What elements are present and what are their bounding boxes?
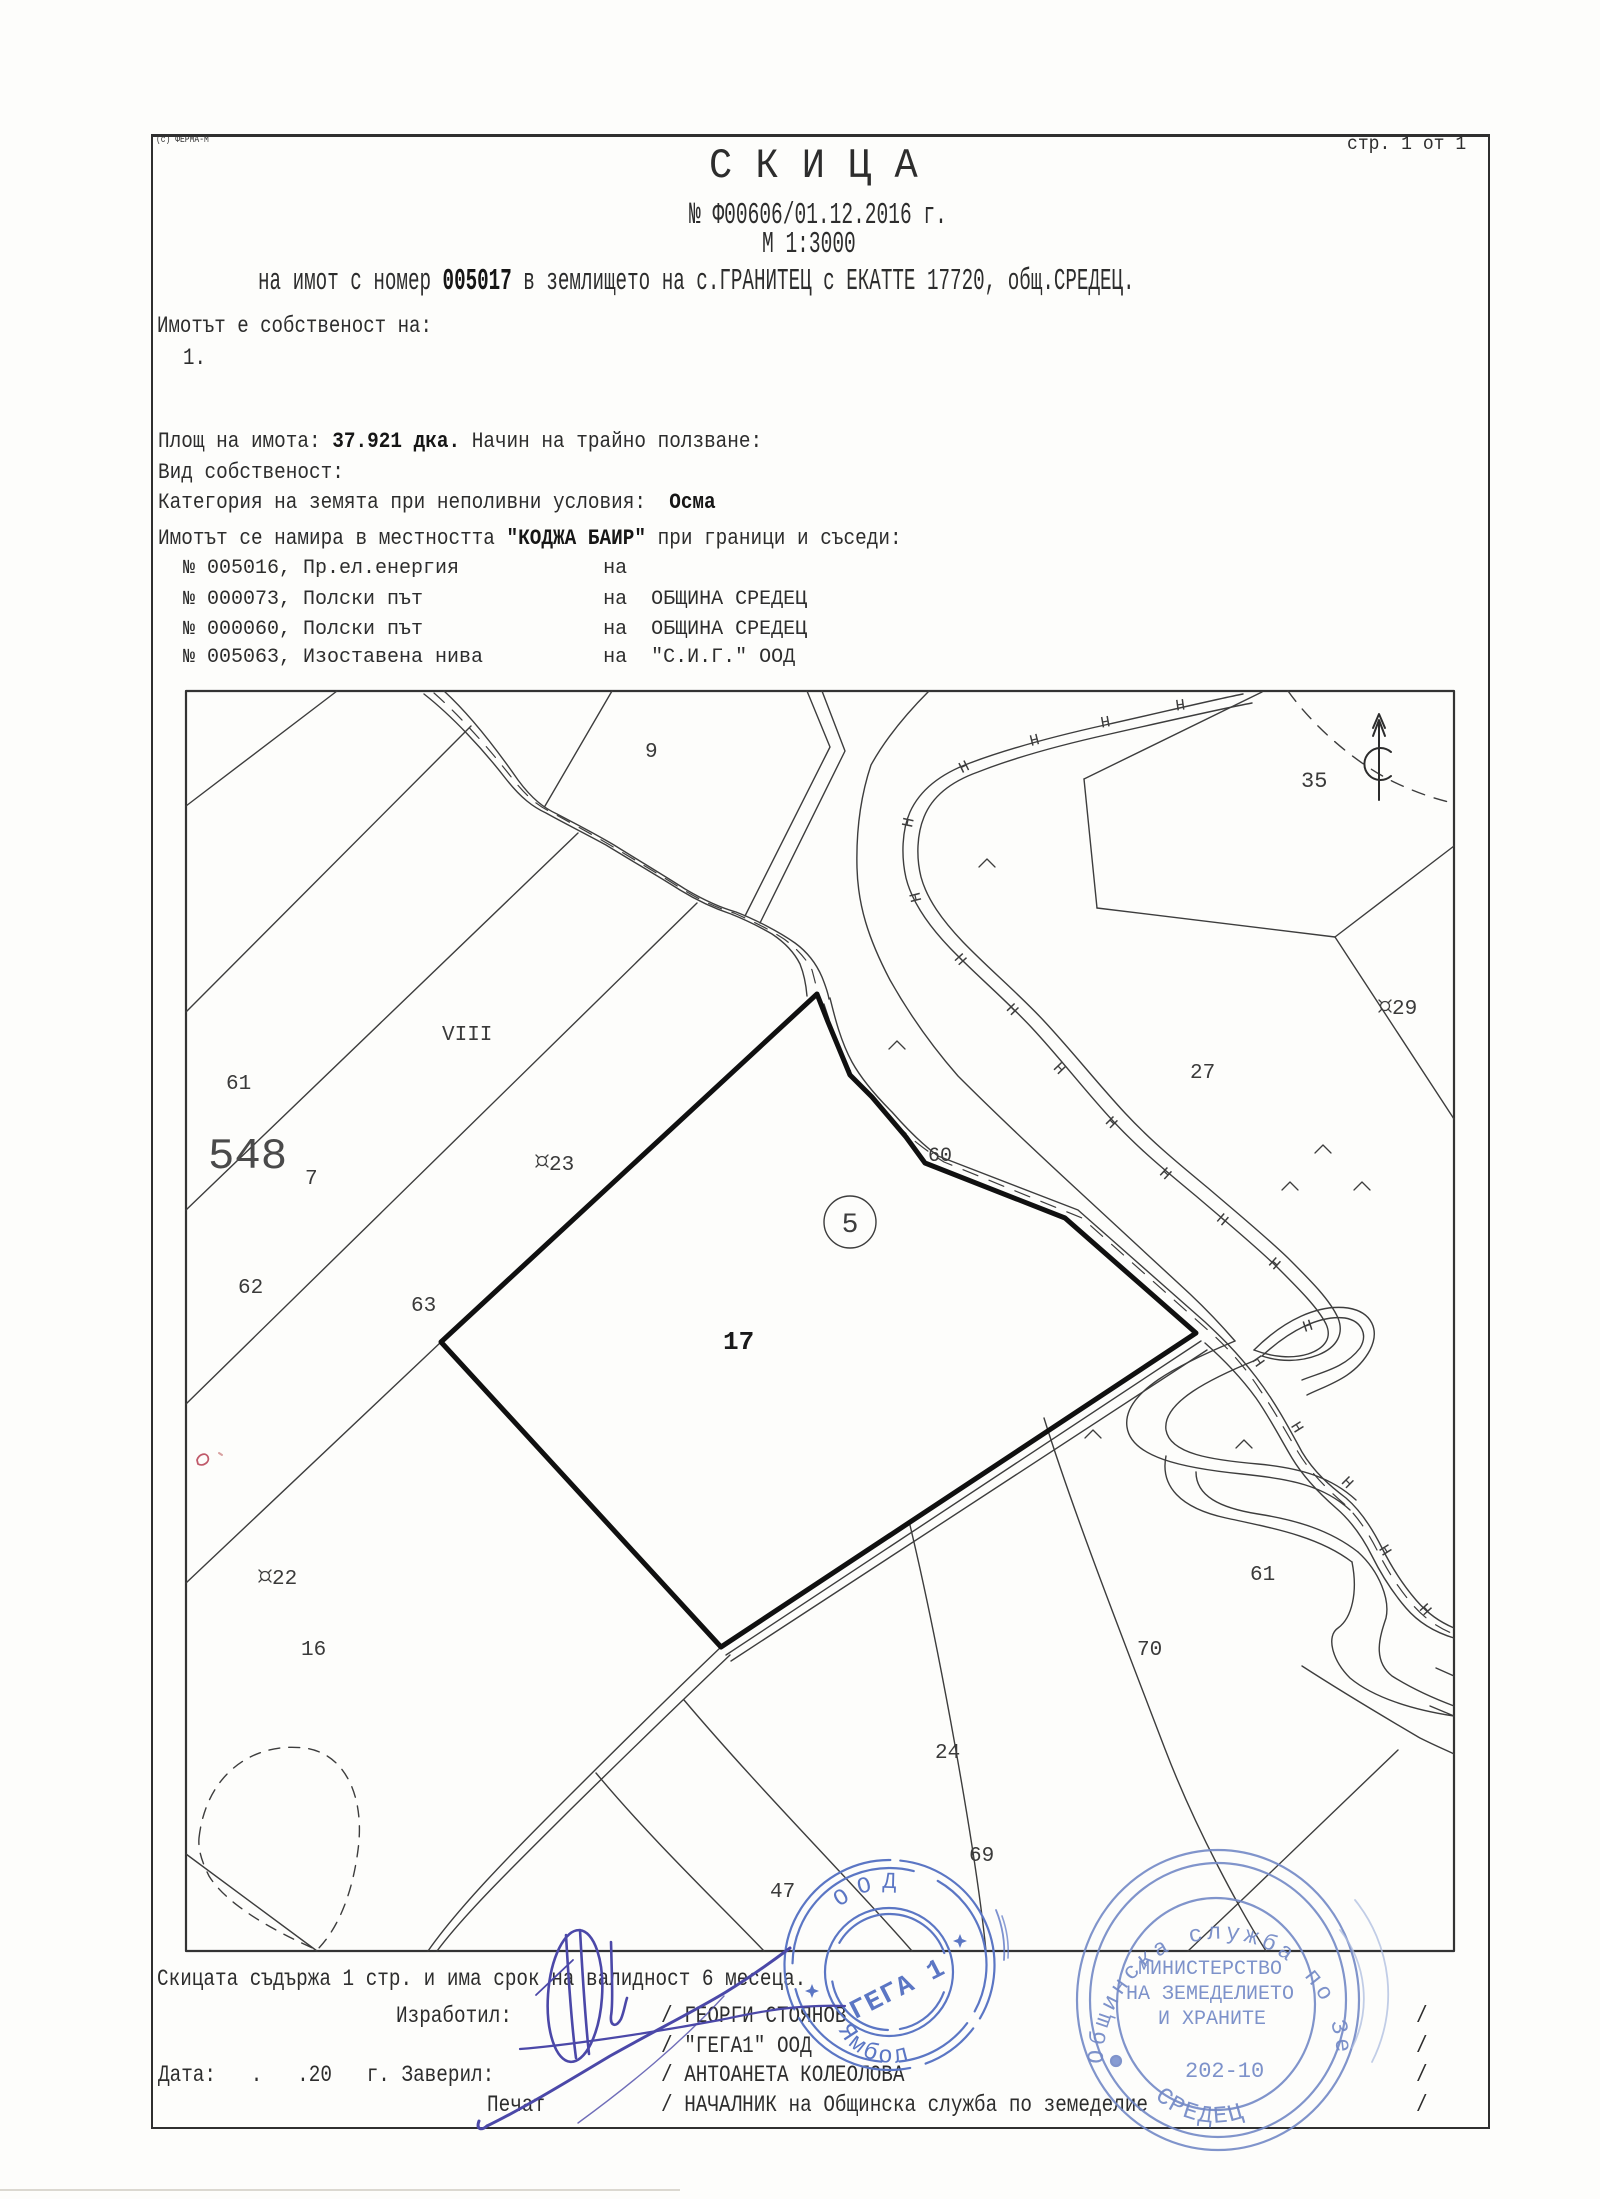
svg-text:НА ЗЕМЕДЕЛИЕТО: НА ЗЕМЕДЕЛИЕТО <box>1126 1983 1294 2006</box>
svg-text:202-10: 202-10 <box>1185 2059 1264 2084</box>
svg-text:Общинска служба по Земеделие: Общинска служба по Земеделие <box>0 0 1356 2065</box>
svg-text:И ХРАНИТЕ: И ХРАНИТЕ <box>1158 2008 1266 2031</box>
svg-text:МИНИСТЕРСТВО: МИНИСТЕРСТВО <box>1138 1958 1282 1981</box>
svg-text:ООД: ООД <box>829 1869 907 1913</box>
